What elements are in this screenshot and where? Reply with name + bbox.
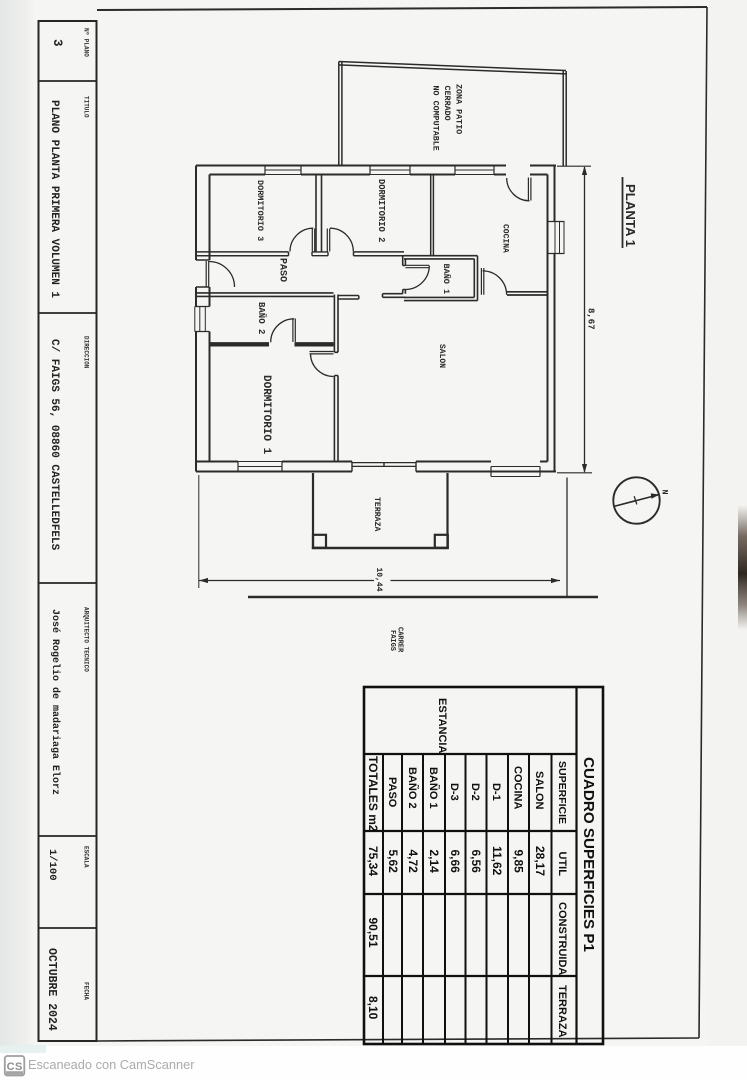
svg-text:10,44: 10,44 — [374, 568, 383, 592]
svg-text:TERRAZA: TERRAZA — [556, 985, 568, 1038]
svg-text:BAÑO 2: BAÑO 2 — [256, 302, 267, 334]
svg-text:PLANTA 1: PLANTA 1 — [623, 184, 638, 247]
svg-text:28,17: 28,17 — [533, 846, 547, 876]
svg-text:CUADRO SUPERFICIES P1: CUADRO SUPERFICIES P1 — [580, 757, 597, 952]
svg-text:DORMITORIO 1: DORMITORIO 1 — [260, 375, 272, 455]
svg-text:Nº PLANO: Nº PLANO — [83, 28, 90, 57]
svg-text:D-1: D-1 — [490, 783, 502, 801]
svg-text:TERRAZA: TERRAZA — [372, 497, 381, 531]
svg-text:OCTUBRE 2024: OCTUBRE 2024 — [45, 948, 58, 1031]
svg-text:COCINA: COCINA — [512, 766, 524, 809]
svg-text:1/100: 1/100 — [46, 849, 58, 881]
svg-text:NO COMPUTABLE: NO COMPUTABLE — [431, 86, 441, 151]
svg-text:N: N — [660, 490, 670, 495]
svg-text:ZONA PATIO: ZONA PATIO — [454, 84, 464, 134]
svg-text:C/ FAIGS 56, 08860 CASTELLEDFE: C/ FAIGS 56, 08860 CASTELLEDFELS — [48, 339, 60, 551]
svg-text:2,14: 2,14 — [427, 850, 441, 874]
svg-text:5,62: 5,62 — [386, 850, 400, 874]
svg-text:8,67: 8,67 — [586, 308, 596, 330]
svg-text:11,62: 11,62 — [490, 846, 504, 876]
svg-text:8,10: 8,10 — [366, 996, 380, 1020]
svg-text:DIRECCION: DIRECCION — [83, 336, 90, 369]
svg-text:ARQUITECTO TECNICO: ARQUITECTO TECNICO — [83, 607, 90, 672]
svg-text:CONSTRUIDA: CONSTRUIDA — [556, 902, 568, 975]
svg-text:75,34: 75,34 — [366, 846, 380, 876]
svg-text:TOTALES m2: TOTALES m2 — [366, 756, 380, 832]
svg-text:PASO: PASO — [277, 258, 288, 282]
svg-text:SALON: SALON — [437, 344, 446, 368]
svg-text:DORMITORIO 3: DORMITORIO 3 — [255, 180, 265, 241]
svg-text:3: 3 — [50, 39, 64, 47]
svg-text:9,85: 9,85 — [512, 850, 526, 874]
svg-text:D-2: D-2 — [469, 783, 481, 801]
svg-text:6,66: 6,66 — [448, 850, 462, 874]
svg-text:BAÑO 1: BAÑO 1 — [441, 264, 452, 295]
svg-text:José Rogelio de madariaga Elor: José Rogelio de madariaga Elorz — [49, 609, 61, 795]
svg-text:COCINA: COCINA — [501, 224, 510, 253]
svg-text:PASO: PASO — [386, 777, 398, 808]
svg-text:ESCALA: ESCALA — [83, 846, 90, 868]
svg-text:BAÑO 1: BAÑO 1 — [427, 767, 440, 809]
svg-text:Escaneado con CamScanner: Escaneado con CamScanner — [28, 1057, 195, 1072]
svg-text:D-3: D-3 — [448, 783, 460, 801]
svg-text:FAIGS: FAIGS — [388, 630, 396, 651]
svg-text:UTIL: UTIL — [556, 852, 568, 877]
svg-text:CS: CS — [7, 1061, 23, 1073]
svg-text:TITULO: TITULO — [83, 96, 90, 118]
svg-text:DORMITORIO 2: DORMITORIO 2 — [376, 179, 386, 242]
svg-text:CERRADO: CERRADO — [442, 86, 452, 121]
svg-text:90,51: 90,51 — [366, 918, 380, 948]
svg-text:4,72: 4,72 — [406, 850, 420, 874]
svg-text:ESTANCIA: ESTANCIA — [436, 698, 448, 753]
svg-text:PLANO PLANTA PRIMERA VOLUMEN 1: PLANO PLANTA PRIMERA VOLUMEN 1 — [48, 100, 60, 298]
svg-text:FECHA: FECHA — [83, 982, 90, 1000]
svg-text:SALON: SALON — [533, 771, 545, 810]
svg-text:BAÑO 2: BAÑO 2 — [406, 767, 419, 809]
svg-text:6,56: 6,56 — [469, 850, 483, 874]
svg-text:SUPERFICIE: SUPERFICIE — [556, 761, 568, 824]
